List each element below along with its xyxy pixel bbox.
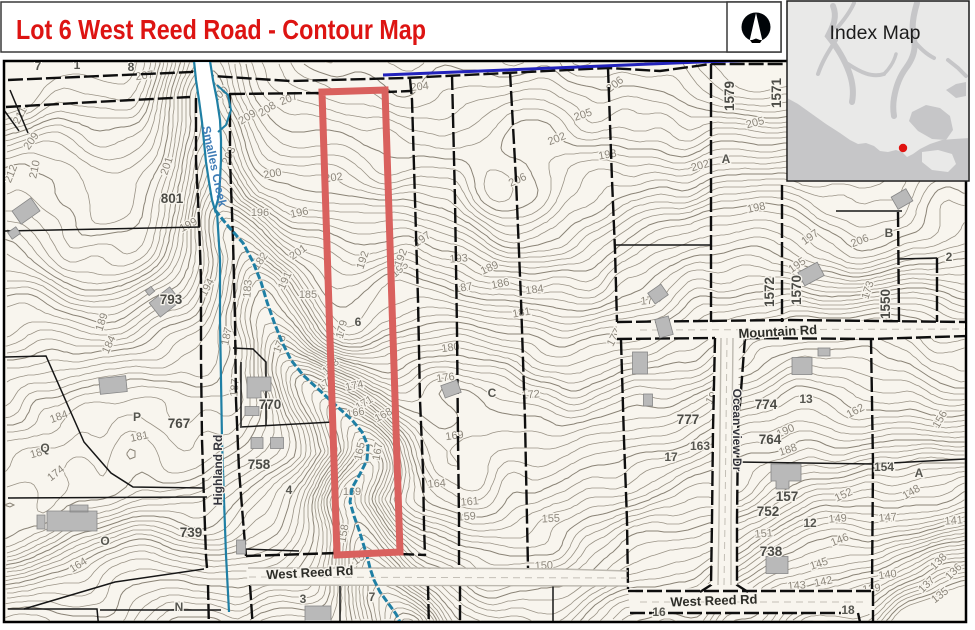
svg-text:164: 164: [427, 477, 446, 491]
svg-text:758: 758: [248, 457, 271, 472]
svg-text:1570: 1570: [789, 275, 804, 305]
svg-text:West Reed Rd: West Reed Rd: [670, 591, 758, 609]
svg-text:752: 752: [757, 504, 780, 519]
svg-text:4: 4: [286, 483, 293, 497]
svg-text:Ocean view Dr: Ocean view Dr: [730, 389, 744, 472]
svg-text:Highland Rd: Highland Rd: [211, 435, 225, 506]
svg-text:1550: 1550: [878, 289, 893, 319]
svg-text:C: C: [488, 386, 497, 400]
svg-text:793: 793: [160, 292, 183, 307]
svg-text:149: 149: [828, 512, 847, 526]
svg-text:Lot 6 West Reed Road - Contour: Lot 6 West Reed Road - Contour Map: [16, 14, 426, 45]
svg-text:801: 801: [161, 191, 184, 206]
svg-text:204: 204: [410, 80, 430, 94]
svg-text:A: A: [722, 152, 731, 166]
svg-text:7: 7: [369, 590, 376, 604]
svg-text:193: 193: [449, 252, 468, 266]
svg-text:1571: 1571: [769, 77, 784, 108]
svg-text:O: O: [100, 534, 109, 548]
svg-text:770: 770: [259, 397, 282, 412]
svg-text:16: 16: [652, 605, 666, 619]
svg-text:767: 767: [168, 416, 191, 431]
svg-text:169: 169: [445, 429, 465, 443]
svg-text:207: 207: [135, 69, 155, 83]
svg-text:12: 12: [803, 516, 817, 530]
svg-text:Index Map: Index Map: [829, 22, 920, 44]
svg-text:161: 161: [460, 495, 479, 509]
svg-text:196: 196: [251, 207, 269, 219]
svg-text:738: 738: [760, 544, 783, 559]
svg-text:157: 157: [776, 489, 799, 504]
svg-text:154: 154: [874, 460, 894, 474]
svg-text:N: N: [175, 600, 184, 614]
svg-text:184: 184: [525, 283, 545, 297]
svg-text:2: 2: [946, 250, 953, 264]
svg-text:Q: Q: [40, 441, 49, 455]
svg-text:18: 18: [841, 603, 855, 617]
svg-text:141: 141: [944, 514, 963, 528]
svg-text:774: 774: [755, 397, 778, 412]
svg-text:B: B: [885, 226, 894, 240]
svg-text:155: 155: [541, 513, 560, 526]
svg-text:777: 777: [677, 412, 700, 427]
svg-text:183: 183: [241, 279, 255, 298]
svg-text:17: 17: [664, 450, 678, 464]
svg-text:8: 8: [128, 60, 135, 74]
svg-text:1572: 1572: [762, 277, 777, 307]
svg-text:1579: 1579: [722, 81, 737, 111]
svg-text:13: 13: [799, 392, 813, 406]
svg-text:151: 151: [754, 527, 773, 541]
svg-text:3: 3: [300, 592, 307, 606]
svg-text:147: 147: [878, 511, 897, 525]
svg-text:A: A: [915, 466, 924, 480]
svg-text:739: 739: [180, 525, 203, 540]
svg-text:140: 140: [878, 568, 898, 582]
svg-text:163: 163: [690, 439, 710, 453]
svg-text:185: 185: [299, 289, 317, 301]
svg-text:6: 6: [355, 315, 362, 329]
svg-text:764: 764: [759, 432, 782, 447]
svg-text:P: P: [133, 410, 141, 424]
